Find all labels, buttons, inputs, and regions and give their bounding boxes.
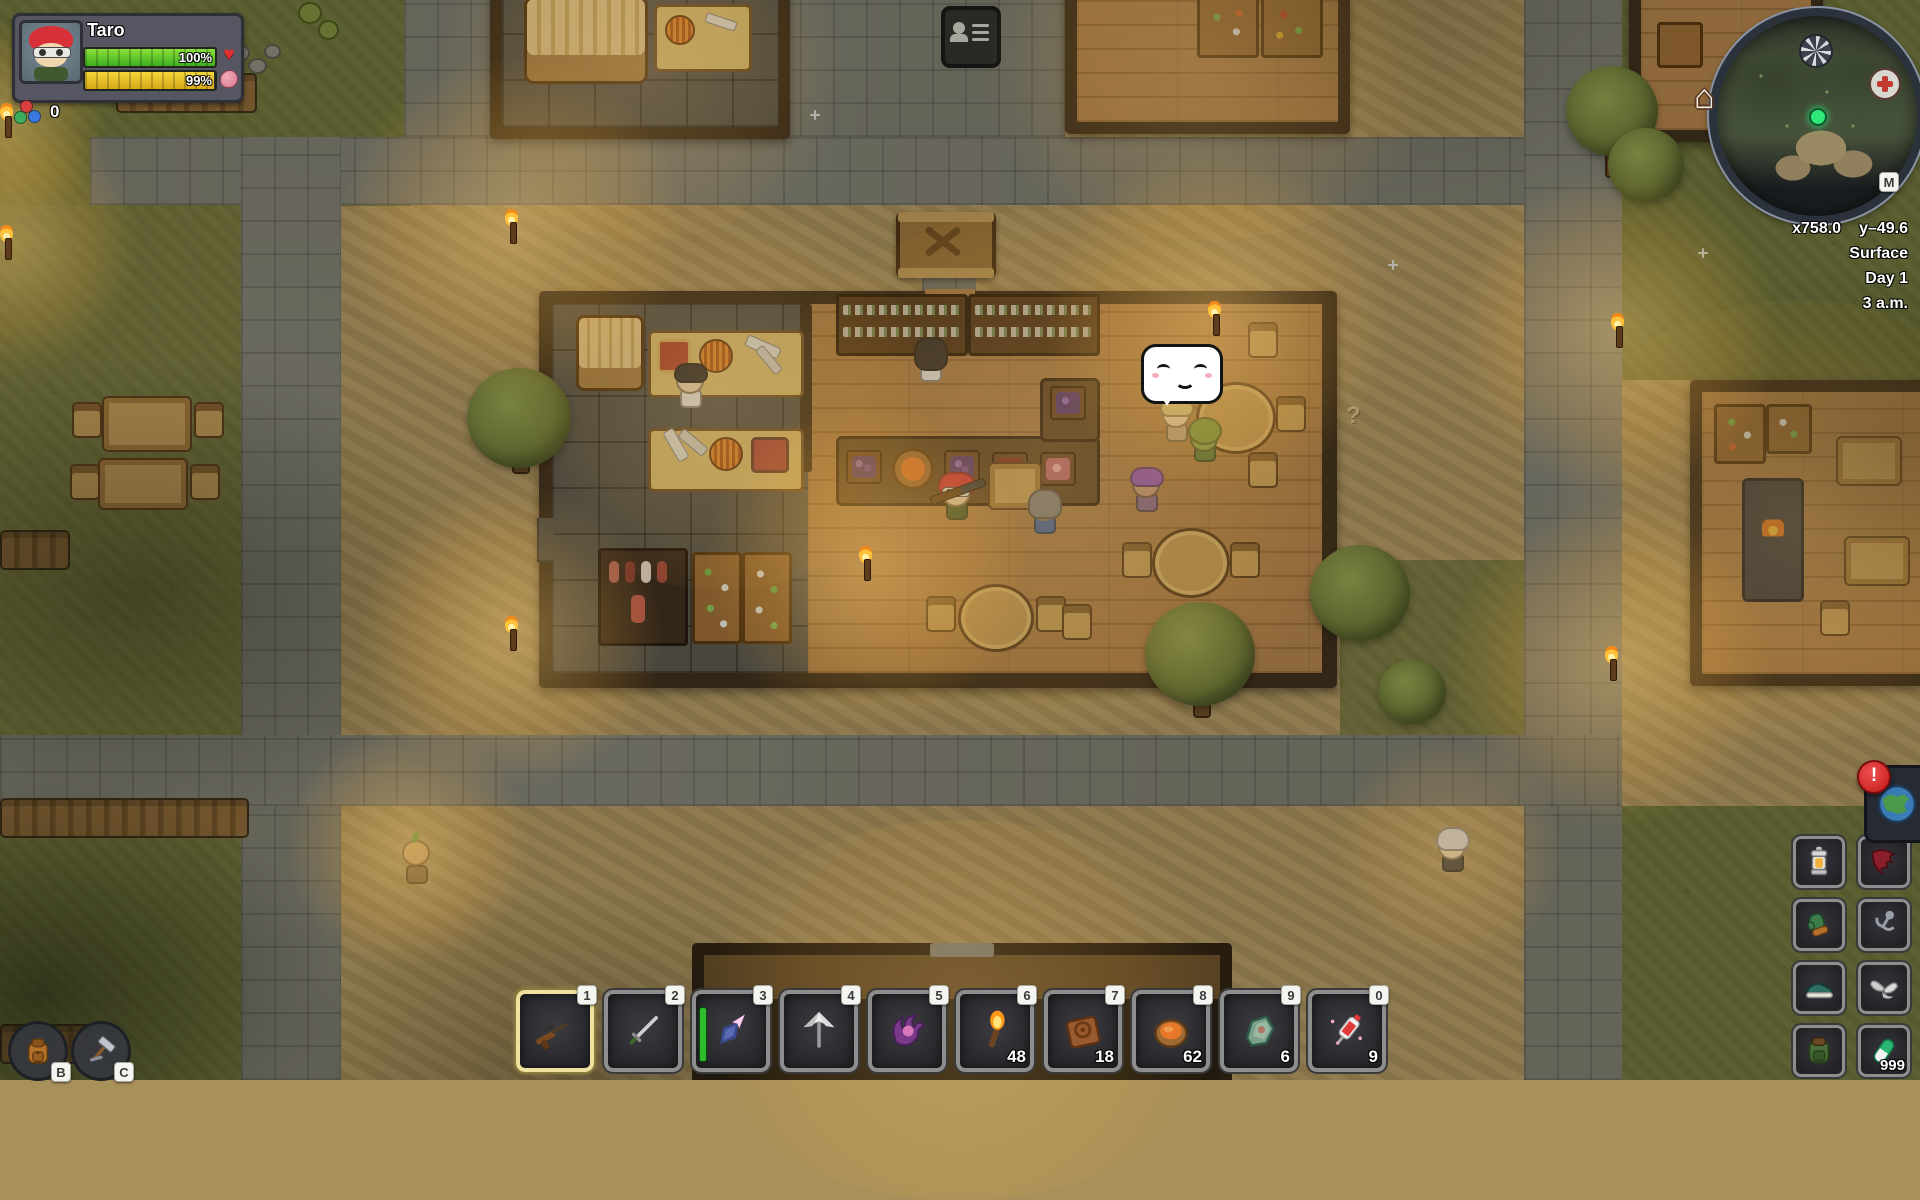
picnic-bench	[190, 464, 220, 500]
stomach-icon	[218, 68, 240, 88]
shoes-icon	[1800, 969, 1838, 1007]
hotbar-slot-health-syringe[interactable]: 09	[1308, 990, 1386, 1072]
round-table[interactable]	[958, 584, 1034, 652]
fish-tray	[1040, 452, 1076, 486]
slot-key-label: 8	[1193, 985, 1213, 1005]
slot-count: 18	[1095, 1047, 1114, 1067]
equipment-slot-red-cape[interactable]	[1858, 836, 1910, 888]
table	[1844, 536, 1910, 586]
torch[interactable]	[859, 545, 873, 581]
tree	[1378, 660, 1446, 724]
fire-icon	[1762, 520, 1784, 537]
coord-y: y–49.6	[1859, 216, 1908, 241]
hotbar: 123456487188629609	[516, 990, 1386, 1072]
slot-key-label: 1	[577, 985, 597, 1005]
grappling-hook-icon	[1865, 906, 1903, 944]
slot-key-label: 6	[1017, 985, 1037, 1005]
torch[interactable]	[1611, 312, 1625, 348]
picnic-table	[98, 458, 188, 510]
smile-icon	[1175, 373, 1195, 389]
hotbar-slot-rapier[interactable]: 2	[604, 990, 682, 1072]
crafting-button[interactable]: C	[71, 1021, 131, 1081]
lantern-icon	[1800, 843, 1838, 881]
veg-table	[1197, 0, 1259, 58]
chair[interactable]	[1230, 542, 1260, 578]
crate	[1657, 22, 1703, 68]
equipment-slot-shoes[interactable]	[1793, 962, 1845, 1014]
npc-bartender[interactable]	[912, 336, 946, 382]
bakery-counter	[654, 4, 752, 72]
picnic-table	[102, 396, 192, 452]
hunting-rifle-icon	[531, 1007, 579, 1055]
slot-key-label: 5	[929, 985, 949, 1005]
slot-count: 62	[1183, 1047, 1202, 1067]
table	[1836, 436, 1902, 486]
bar-shelf	[836, 294, 968, 356]
time-label: 3 a.m.	[1792, 291, 1908, 316]
npc-old-lady[interactable]	[1434, 826, 1468, 872]
inventory-key-label: B	[51, 1062, 71, 1082]
chef-hair	[674, 363, 708, 383]
hotbar-slot-hunting-rifle[interactable]: 1	[516, 990, 594, 1072]
fence-left-edge	[0, 530, 70, 570]
question-mark: ?	[1346, 402, 1361, 430]
durability-bar	[699, 1007, 707, 1062]
road-left-vertical	[241, 137, 341, 1080]
veg-table	[1261, 0, 1323, 58]
equipment-slot-backpack[interactable]	[1793, 1025, 1845, 1077]
goggles-icon	[33, 47, 71, 58]
torch[interactable]	[1605, 645, 1619, 681]
npc-grey-hair[interactable]	[1026, 488, 1060, 534]
chair[interactable]	[1122, 542, 1152, 578]
tavern-sign[interactable]	[896, 212, 996, 278]
veg-crate	[1766, 404, 1812, 454]
hotbar-slot-void-claw[interactable]: 5	[868, 990, 946, 1072]
coin-counter: 0	[14, 98, 84, 130]
picnic-bench	[72, 402, 102, 438]
bar-shelf	[968, 294, 1100, 356]
player-character[interactable]	[938, 474, 972, 520]
gourd-plant	[298, 2, 322, 24]
food-bar: 99%	[83, 70, 217, 91]
bread-basket-small	[576, 315, 644, 391]
health-value: 100%	[179, 49, 212, 66]
equipment-slot-lantern[interactable]	[1793, 836, 1845, 888]
chair[interactable]	[1248, 322, 1278, 358]
grape-tray	[1050, 386, 1086, 420]
soup-pot	[892, 448, 934, 490]
round-table[interactable]	[1152, 528, 1230, 598]
meat-rack	[598, 548, 688, 646]
npc-chef[interactable]	[672, 362, 706, 408]
top-right-building	[1065, 0, 1350, 134]
portal-spiral-icon	[1799, 34, 1833, 68]
slot-count: 6	[1281, 1047, 1290, 1067]
slot-count: 48	[1007, 1047, 1026, 1067]
hotbar-slot-iron-star-pickaxe[interactable]: 4	[780, 990, 858, 1072]
gourd-plant	[318, 20, 339, 40]
hotbar-slot-torch[interactable]: 648	[956, 990, 1034, 1072]
flower	[810, 110, 820, 120]
tavern-door-left[interactable]	[537, 518, 554, 562]
fence-bottom-left	[0, 798, 249, 838]
hotbar-slot-crystal-spear[interactable]: 3	[692, 990, 770, 1072]
chair[interactable]	[1062, 604, 1092, 640]
backpack-icon	[1800, 1032, 1838, 1070]
rock	[264, 44, 281, 59]
silver-wings-icon	[1865, 969, 1903, 1007]
minimap-info: x758.0 y–49.6 Surface Day 1 3 a.m.	[1792, 216, 1908, 316]
heart-icon: ♥	[218, 45, 240, 65]
slot-key-label: 2	[665, 985, 685, 1005]
hotbar-slot-soup-bowl[interactable]: 862	[1132, 990, 1210, 1072]
speech-bubble-emote	[1141, 344, 1223, 404]
backpack-icon	[21, 1034, 55, 1068]
torch[interactable]	[1208, 300, 1222, 336]
veg-crate	[1714, 404, 1766, 464]
tree	[467, 368, 571, 468]
avatar[interactable]	[19, 20, 83, 84]
chair[interactable]	[1248, 452, 1278, 488]
crafting-hammer-icon	[84, 1034, 118, 1068]
tree	[1145, 602, 1255, 706]
red-cape-icon	[1865, 843, 1903, 881]
npc-green-hood[interactable]	[1186, 416, 1220, 462]
map-key-label[interactable]: M	[1879, 172, 1899, 192]
medical-cross-icon	[1869, 68, 1901, 100]
tree	[1310, 545, 1410, 641]
ore-shard-icon	[1235, 1007, 1283, 1055]
npc-purple-hair[interactable]	[1128, 466, 1162, 512]
equipment-slot-health-capsule[interactable]: 999	[1858, 1025, 1910, 1077]
picnic-bench	[194, 402, 224, 438]
veg-crate	[742, 552, 792, 644]
happy-eye-icon	[1194, 364, 1207, 374]
person-icon	[953, 22, 965, 34]
inventory-button[interactable]: B	[8, 1021, 68, 1081]
happy-eye-icon	[1157, 364, 1170, 374]
bulletin-board[interactable]	[941, 6, 1001, 68]
player-marker	[1809, 108, 1827, 126]
equipment-slot-grappling-hook[interactable]	[1858, 899, 1910, 951]
health-syringe-icon	[1323, 1007, 1371, 1055]
slot-key-label: 7	[1105, 985, 1125, 1005]
player-hud-panel: Taro 100% ♥ 99%	[12, 13, 244, 103]
world-button[interactable]: !	[1864, 765, 1920, 843]
home-icon: ⌂	[1694, 80, 1715, 114]
slot-count: 9	[1369, 1047, 1378, 1067]
hotbar-slot-ore-shard[interactable]: 96	[1220, 990, 1298, 1072]
stove[interactable]	[1742, 478, 1804, 602]
doorstep	[930, 943, 994, 957]
kitchen-counter-2	[648, 428, 804, 492]
slot-key-label: 9	[1281, 985, 1301, 1005]
hotbar-slot-cooked-meat[interactable]: 718	[1044, 990, 1122, 1072]
equipment-slot-gloves[interactable]	[1793, 899, 1845, 951]
health-bar: 100%	[83, 47, 217, 68]
rock	[248, 58, 267, 74]
slot-key-label: 0	[1369, 985, 1389, 1005]
gloves-icon	[1800, 906, 1838, 944]
crafting-key-label: C	[114, 1062, 134, 1082]
iron-star-pickaxe-icon	[795, 1007, 843, 1055]
flower	[1698, 248, 1708, 258]
road-mid	[0, 735, 1622, 806]
slot-key-label: 4	[841, 985, 861, 1005]
equipment-grid: 999	[1793, 836, 1910, 1077]
coin-count: 0	[50, 102, 59, 122]
coordinates: x758.0 y–49.6	[1792, 216, 1908, 241]
player-name: Taro	[87, 20, 125, 41]
slot-key-label: 3	[753, 985, 773, 1005]
torch[interactable]	[505, 615, 519, 651]
npc-villager[interactable]	[398, 838, 432, 884]
torch[interactable]	[0, 102, 14, 138]
void-claw-icon	[883, 1007, 931, 1055]
day-label: Day 1	[1792, 266, 1908, 291]
food-value: 99%	[186, 72, 212, 89]
alert-badge: !	[1857, 760, 1891, 794]
chair[interactable]	[926, 596, 956, 632]
tree	[1608, 128, 1684, 202]
chair[interactable]	[1276, 396, 1306, 432]
torch[interactable]	[0, 224, 14, 260]
layer-label: Surface	[1792, 241, 1908, 266]
picnic-bench	[70, 464, 100, 500]
crystal-spear-icon	[707, 1007, 755, 1055]
flower	[1388, 260, 1398, 270]
rapier-icon	[619, 1007, 667, 1055]
slot-count: 999	[1880, 1057, 1905, 1074]
veg-crate	[692, 552, 742, 644]
bakery-building	[490, 0, 790, 139]
right-building	[1690, 380, 1920, 686]
bread-basket[interactable]	[524, 0, 648, 84]
grape-tray	[846, 450, 882, 484]
chair[interactable]	[1820, 600, 1850, 636]
equipment-slot-silver-wings[interactable]	[1858, 962, 1910, 1014]
coord-x: x758.0	[1792, 216, 1841, 241]
torch[interactable]	[505, 208, 519, 244]
